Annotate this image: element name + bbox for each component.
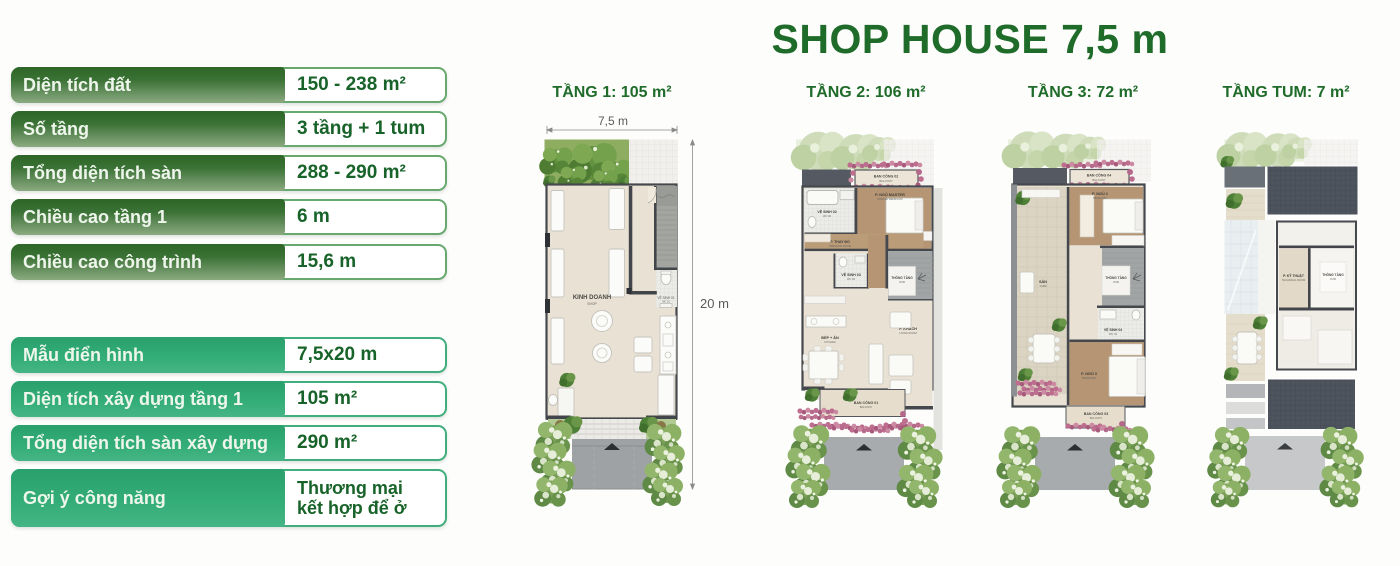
- svg-text:BẾP + ĂN: BẾP + ĂN: [821, 335, 839, 340]
- svg-text:P. NGỦ 2: P. NGỦ 2: [1092, 191, 1108, 196]
- svg-text:BALCONY: BALCONY: [1090, 416, 1103, 420]
- svg-text:YARD: YARD: [1039, 284, 1046, 288]
- svg-text:KINH DOANH: KINH DOANH: [573, 295, 611, 301]
- svg-text:WC 03: WC 03: [847, 277, 855, 281]
- svg-text:BAN CÔNG 03: BAN CÔNG 03: [1084, 411, 1109, 416]
- svg-text:VỆ SINH 04: VỆ SINH 04: [1104, 327, 1122, 332]
- svg-text:LIVING ROOM: LIVING ROOM: [899, 331, 916, 335]
- svg-text:VOID: VOID: [1113, 280, 1119, 284]
- svg-text:VỆ SINH 02: VỆ SINH 02: [817, 209, 836, 214]
- svg-text:BAN CÔNG 01: BAN CÔNG 01: [854, 400, 879, 405]
- svg-text:P. THAY ĐỒ: P. THAY ĐỒ: [830, 239, 850, 244]
- svg-text:WC 02: WC 02: [823, 214, 831, 218]
- svg-text:WC 01: WC 01: [662, 301, 670, 304]
- svg-text:P. NGỦ MASTER: P. NGỦ MASTER: [875, 192, 905, 197]
- svg-text:SHOP: SHOP: [587, 302, 597, 306]
- svg-text:VỆ SINH 01: VỆ SINH 01: [657, 295, 674, 300]
- svg-text:MASTER BEDROOM: MASTER BEDROOM: [878, 197, 903, 201]
- svg-text:BEDROOM: BEDROOM: [1093, 196, 1106, 200]
- svg-text:BALCONY: BALCONY: [1092, 178, 1106, 182]
- svg-text:BAN CÔNG 02: BAN CÔNG 02: [874, 174, 899, 179]
- svg-text:VOID: VOID: [1330, 277, 1336, 281]
- svg-text:BALCONY: BALCONY: [860, 405, 873, 409]
- svg-text:SÂN: SÂN: [1039, 279, 1047, 284]
- svg-text:THÔNG TẦNG: THÔNG TẦNG: [1322, 272, 1344, 277]
- svg-text:THÔNG TẦNG: THÔNG TẦNG: [1105, 275, 1127, 280]
- svg-text:BALCONY: BALCONY: [879, 179, 893, 183]
- svg-text:BEDROOM: BEDROOM: [1082, 376, 1095, 380]
- svg-text:VOID: VOID: [899, 280, 905, 284]
- svg-text:P. NGỦ 3: P. NGỦ 3: [1081, 371, 1097, 376]
- svg-text:DRESSING ROOM: DRESSING ROOM: [829, 244, 851, 248]
- svg-text:P. KỸ THUẬT: P. KỸ THUẬT: [1283, 273, 1305, 278]
- svg-text:THÔNG TẦNG: THÔNG TẦNG: [891, 275, 913, 280]
- svg-text:WC 04: WC 04: [1109, 332, 1117, 336]
- svg-text:BAN CÔNG 04: BAN CÔNG 04: [1087, 173, 1112, 178]
- svg-text:VỆ SINH 03: VỆ SINH 03: [841, 272, 860, 277]
- svg-text:TECHNICAL ROOM: TECHNICAL ROOM: [1282, 278, 1305, 282]
- svg-text:KITCHEN: KITCHEN: [824, 340, 836, 344]
